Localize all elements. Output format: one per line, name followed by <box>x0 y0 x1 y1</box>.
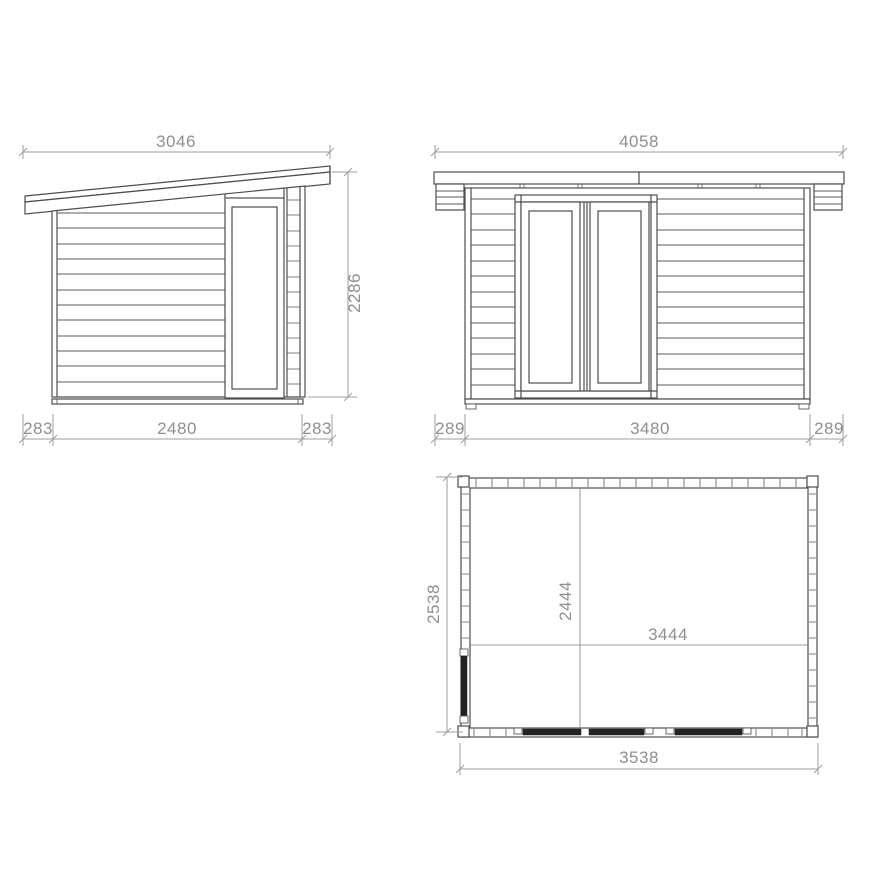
plan-internal-width-label: 3444 <box>648 625 688 644</box>
front-base <box>465 399 810 409</box>
plan-front-doors <box>514 728 751 735</box>
front-right-overhang-label: 289 <box>814 419 844 438</box>
front-elevation-view: 4058 <box>431 132 847 446</box>
plan-bottom-dimension: 3538 <box>456 743 822 775</box>
plan-side-window <box>460 649 468 723</box>
side-overall-height-label: 2286 <box>345 273 364 313</box>
front-overall-width-label: 4058 <box>619 132 659 151</box>
side-wall-length-label: 2480 <box>157 419 197 438</box>
side-left-overhang-label: 283 <box>23 419 53 438</box>
plan-internal-depth-label: 2444 <box>556 581 575 621</box>
front-double-door <box>515 195 657 398</box>
front-top-dimension: 4058 <box>431 132 847 159</box>
front-right-beam-end <box>814 184 842 210</box>
plan-overall-width-label: 3538 <box>619 748 659 767</box>
floor-plan-view: 2444 3444 2538 <box>424 473 822 775</box>
side-right-overhang-label: 283 <box>302 419 332 438</box>
side-base <box>52 399 303 404</box>
front-wall-length-label: 3480 <box>630 419 670 438</box>
front-left-overhang-label: 289 <box>435 419 465 438</box>
plan-walls <box>461 478 817 737</box>
front-left-beam-end <box>436 184 464 210</box>
side-height-dimension: 2286 <box>308 168 364 401</box>
plan-overall-depth-label: 2538 <box>424 584 443 624</box>
front-bottom-dimension: 289 3480 289 <box>431 414 847 446</box>
side-window <box>225 188 284 398</box>
side-bottom-dimension: 283 2480 283 <box>19 414 336 446</box>
plan-left-dimension: 2538 <box>424 473 463 736</box>
side-overall-width-label: 3046 <box>156 132 196 151</box>
side-elevation-view: 3046 <box>19 132 364 446</box>
door-leaf-right <box>590 202 649 391</box>
door-leaf-left <box>521 202 580 391</box>
side-top-dimension: 3046 <box>19 132 334 159</box>
shed-blueprint-svg: 3046 <box>0 0 870 870</box>
technical-drawing-page: 3046 <box>0 0 870 870</box>
front-roof-fascia <box>434 172 844 188</box>
